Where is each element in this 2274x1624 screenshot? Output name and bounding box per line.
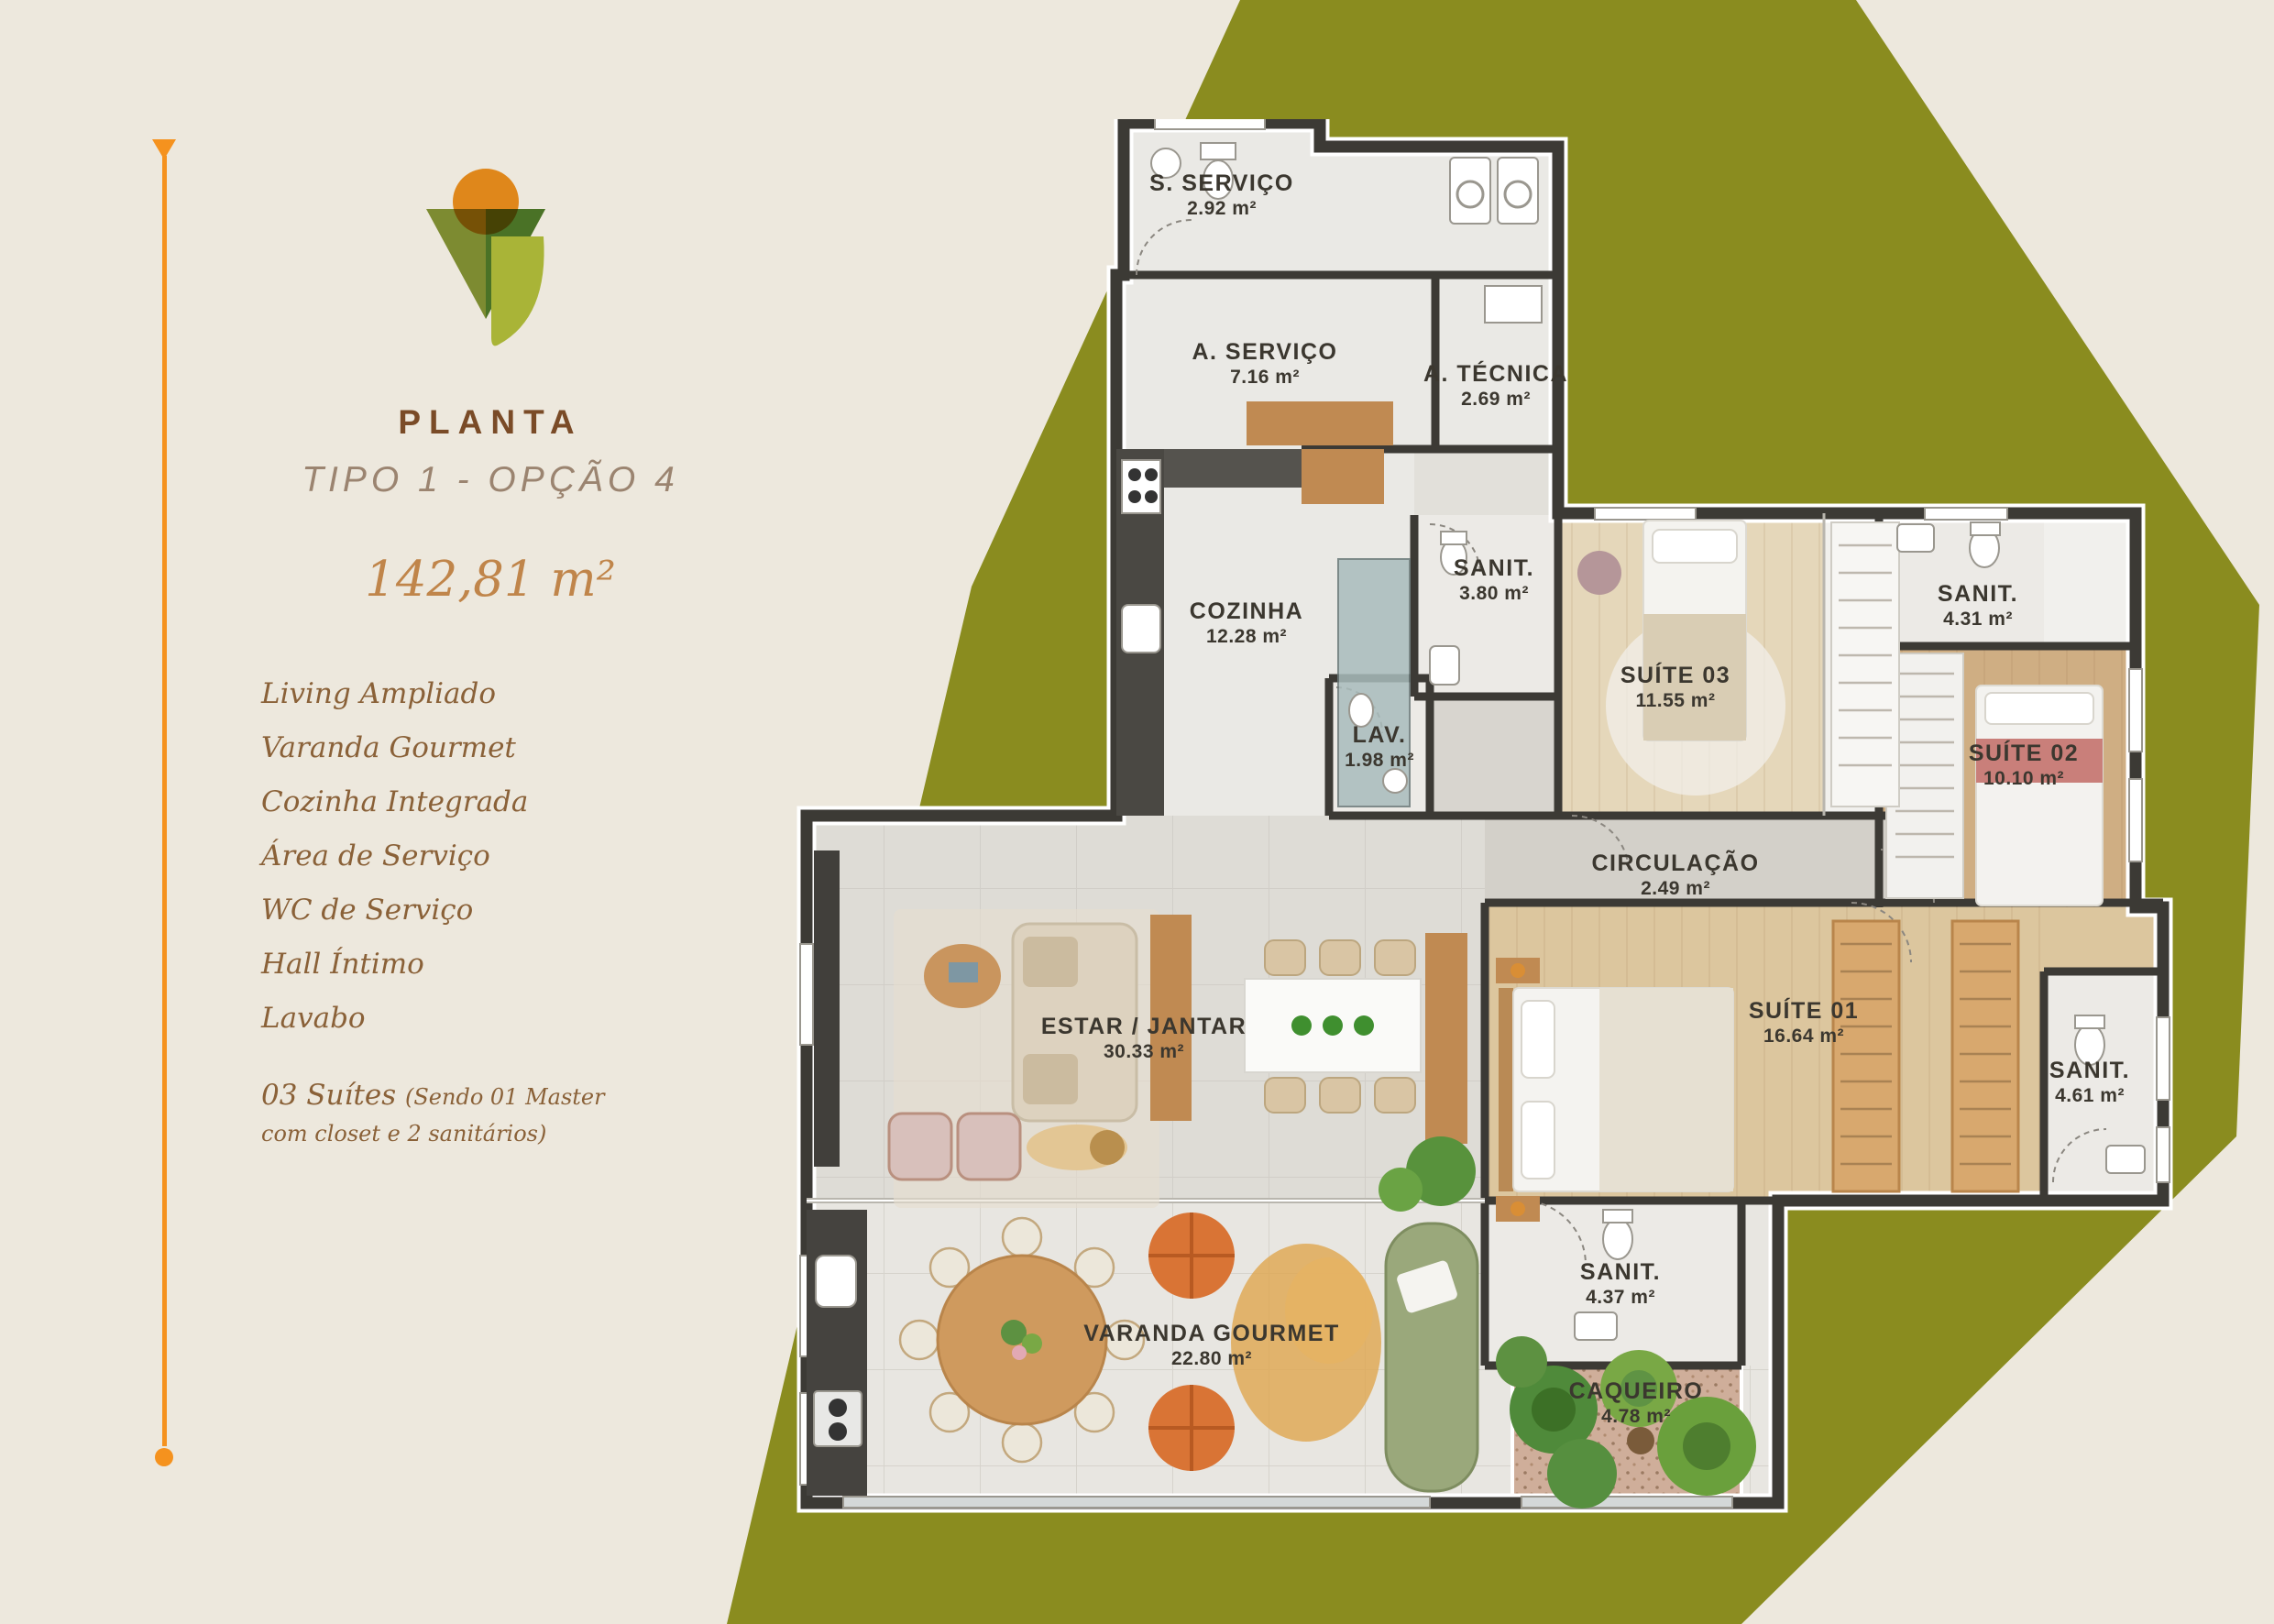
room-label: SANIT.4.61 m² (2049, 1058, 2130, 1106)
room-label: SANIT.4.31 m² (1938, 581, 2018, 630)
accent-line (162, 156, 167, 1446)
room-label: COZINHA12.28 m² (1190, 598, 1303, 647)
accent-dot (155, 1448, 173, 1466)
feature-item: Lavabo (261, 992, 701, 1046)
feature-item: WC de Serviço (261, 883, 701, 938)
feature-item: Cozinha Integrada (261, 775, 701, 829)
feature-item: Varanda Gourmet (261, 721, 701, 775)
room-label: SUÍTE 0210.10 m² (1969, 740, 2079, 789)
brand-logo (411, 154, 562, 351)
feature-list: Living AmpliadoVaranda GourmetCozinha In… (261, 667, 701, 1046)
page-title: PLANTA (211, 403, 770, 442)
room-label: SUÍTE 0311.55 m² (1620, 662, 1730, 711)
suites-main: 03 Suítes (261, 1079, 396, 1112)
page-subtitle: TIPO 1 - OPÇÃO 4 (156, 460, 825, 500)
technical-unit (1485, 286, 1542, 323)
total-area-text: 142,81 m² (211, 552, 770, 608)
kitchen-island (1245, 933, 1467, 1144)
page: { "panel": { "title": "PLANTA", "subtitl… (0, 0, 2274, 1624)
room-label: SANIT.4.37 m² (1580, 1259, 1661, 1308)
room-label: SANIT.3.80 m² (1454, 555, 1534, 604)
floorplan-svg: S. SERVIÇO2.92 m²A. SERVIÇO7.16 m²A. TÉC… (788, 119, 2191, 1521)
wood-bench (1247, 401, 1393, 445)
feature-item: Área de Serviço (261, 829, 701, 883)
feature-item: Hall Íntimo (261, 938, 701, 992)
room-label: SUÍTE 0116.64 m² (1749, 997, 1859, 1047)
room-label: LAV.1.98 m² (1345, 722, 1414, 771)
green-sofa (1386, 1223, 1478, 1491)
feature-item: Living Ampliado (261, 667, 701, 721)
suites-feature: 03 Suítes (Sendo 01 Master com closet e … (261, 1078, 646, 1151)
